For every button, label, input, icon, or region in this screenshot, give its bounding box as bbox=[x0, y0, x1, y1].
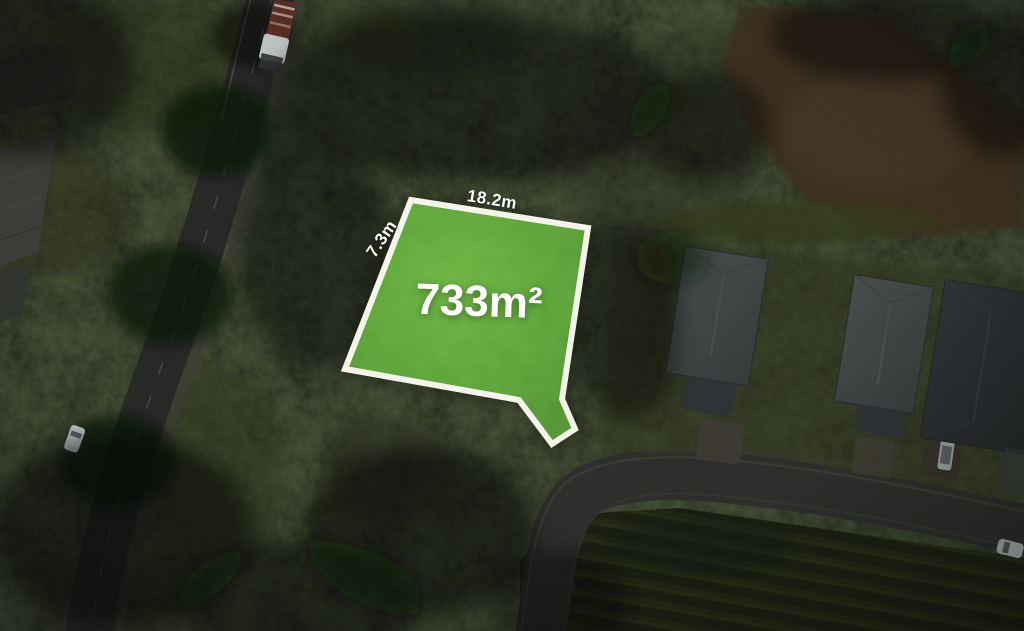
aerial-photo-stage: 18.2m 7.3m 733m² bbox=[0, 0, 1024, 631]
area-label: 733m² bbox=[415, 275, 544, 329]
